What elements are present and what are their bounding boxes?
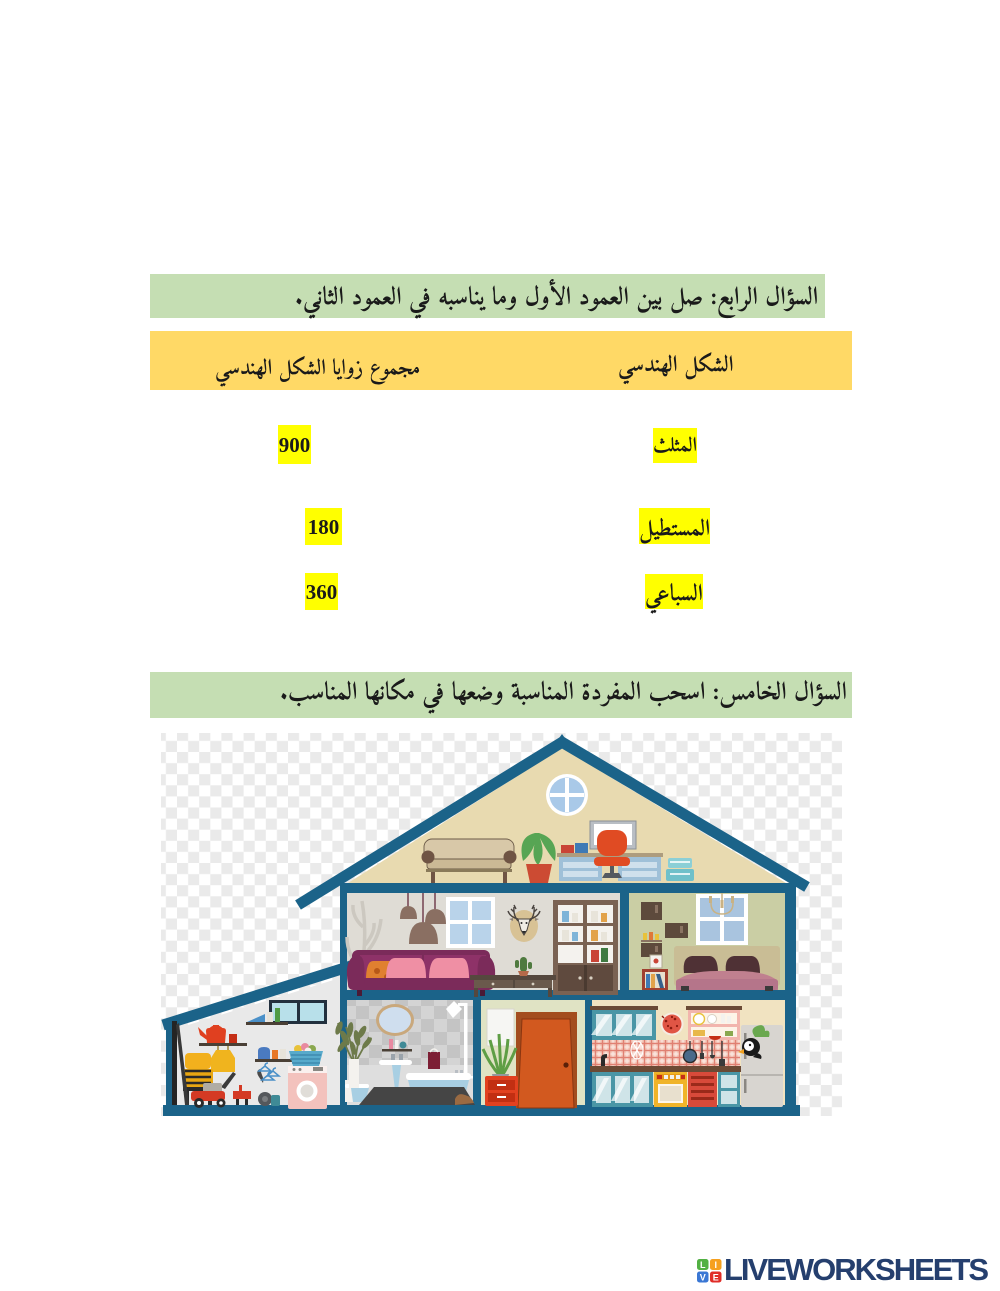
svg-text:I: I: [715, 1260, 718, 1270]
svg-text:E: E: [713, 1273, 719, 1283]
svg-text:V: V: [700, 1273, 706, 1283]
svg-text:L: L: [700, 1260, 706, 1270]
